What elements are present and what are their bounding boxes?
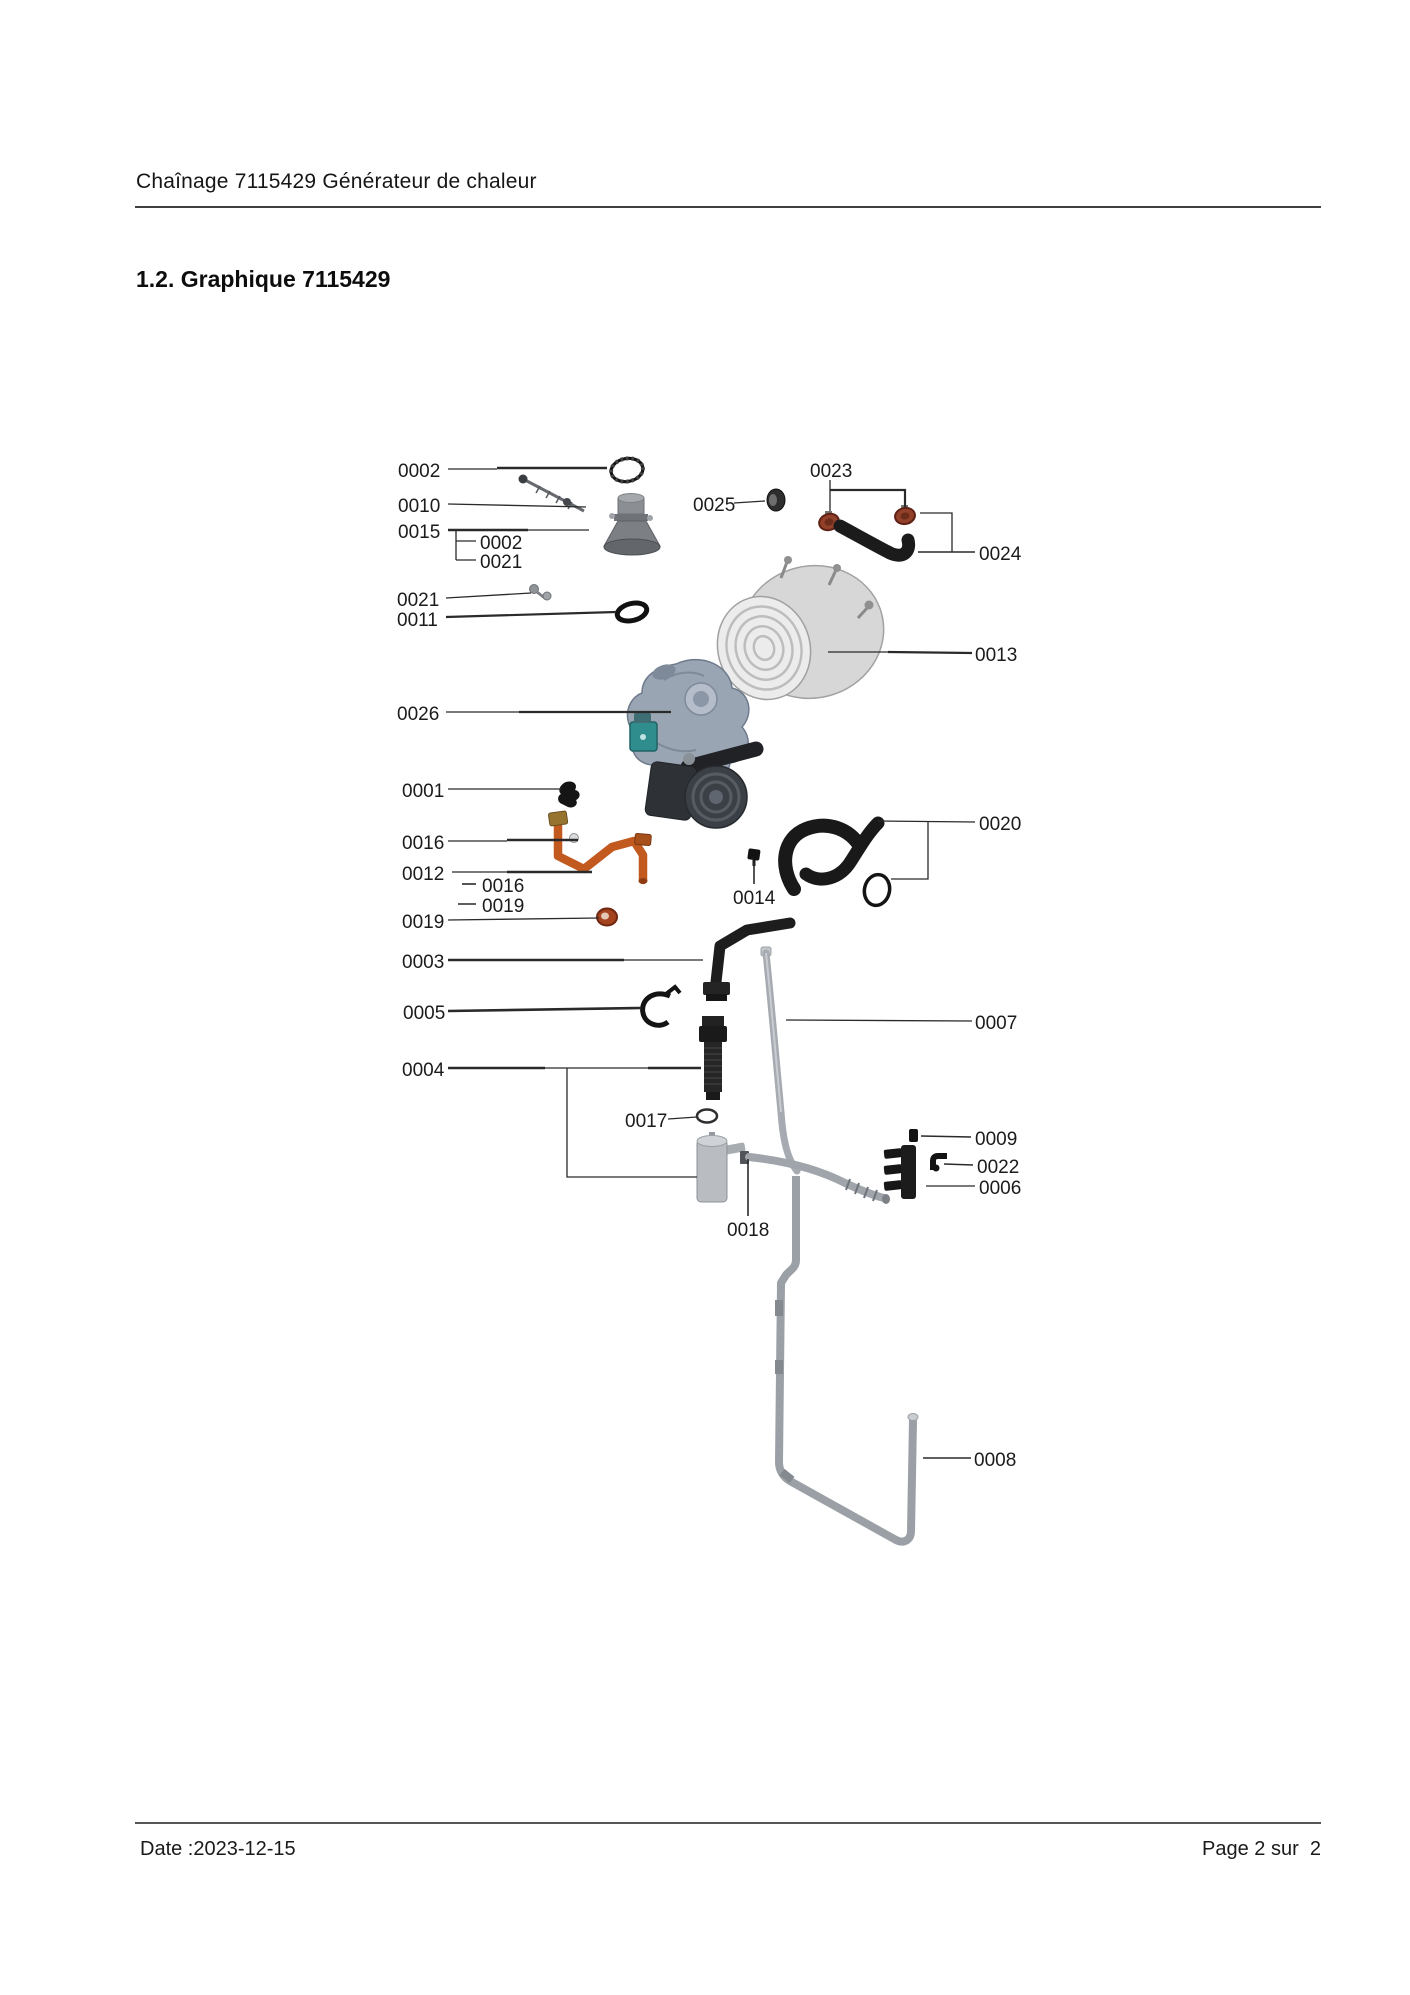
- part-screws-0021: [530, 585, 552, 601]
- leader-line: [786, 1020, 972, 1021]
- footer-page-number: Page 2 sur 2: [135, 1838, 1321, 1861]
- part-label: 0022: [977, 1157, 1019, 1178]
- annotation-layer: 0002001000150002002100210011002600010016…: [397, 461, 1022, 1471]
- part-clip-0005: [643, 987, 680, 1025]
- footer-rule: [135, 1822, 1321, 1824]
- part-label: 0005: [403, 1003, 445, 1024]
- part-oring-0002: [609, 456, 645, 484]
- part-label: 0019: [482, 896, 524, 917]
- part-manifold-0006: [884, 1145, 916, 1199]
- part-oring-0011: [615, 600, 648, 624]
- leader-line: [734, 501, 765, 503]
- part-label: 0013: [975, 645, 1017, 666]
- part-oring-0017: [697, 1110, 717, 1123]
- leader-line: [891, 822, 928, 879]
- part-clip-0001: [558, 782, 580, 808]
- leader-line: [944, 1164, 973, 1165]
- part-clamps-0023: [817, 505, 916, 533]
- leader-line: [446, 612, 616, 617]
- part-pipe-0007: [761, 947, 797, 1171]
- part-hose-0024: [840, 526, 909, 555]
- leader-line: [668, 1117, 697, 1119]
- part-label: 0004: [402, 1060, 445, 1081]
- part-label: 0018: [727, 1220, 769, 1241]
- part-label: 0016: [482, 876, 524, 897]
- part-label: 0026: [397, 704, 439, 725]
- part-label: 0017: [625, 1111, 667, 1132]
- leader-line: [448, 918, 599, 920]
- part-label: 0003: [402, 952, 444, 973]
- leader-line: [920, 513, 952, 552]
- part-label: 0025: [693, 495, 735, 516]
- leader-line: [446, 593, 531, 598]
- part-hose-0020: [785, 823, 878, 889]
- leader-line: [830, 490, 905, 507]
- part-label: 0021: [480, 552, 522, 573]
- part-label: 0007: [975, 1013, 1017, 1034]
- part-sleeve-0004b: [697, 1132, 746, 1202]
- part-label: 0008: [974, 1450, 1016, 1471]
- part-grommet-0025: [767, 489, 785, 511]
- part-label: 0014: [733, 888, 776, 909]
- exploded-parts-diagram: 0002001000150002002100210011002600010016…: [0, 0, 1410, 1995]
- part-label: 0012: [402, 864, 444, 885]
- part-label: 0016: [402, 833, 444, 854]
- part-label: 0023: [810, 461, 852, 482]
- part-label: 0010: [398, 496, 440, 517]
- part-pipe-0003: [703, 923, 790, 1001]
- part-pipe-0018: [740, 1151, 890, 1204]
- part-label: 0024: [979, 544, 1022, 565]
- part-label: 0002: [398, 461, 440, 482]
- leader-line: [888, 652, 972, 653]
- part-label: 0011: [397, 610, 438, 631]
- part-pipe-0008: [779, 1176, 918, 1542]
- part-pin-0009: [909, 1129, 918, 1142]
- part-label: 0020: [979, 814, 1021, 835]
- leader-line: [448, 1008, 641, 1011]
- part-label: 0015: [398, 522, 440, 543]
- document-page: { "header": { "title": "Chaînage 7115429…: [0, 0, 1410, 1995]
- part-label: 0009: [975, 1129, 1017, 1150]
- part-label: 0006: [979, 1178, 1021, 1199]
- part-label: 0002: [480, 533, 522, 554]
- leader-line: [921, 1136, 971, 1137]
- part-oring-0020: [862, 872, 893, 908]
- part-label: 0019: [402, 912, 444, 933]
- part-threaded-tube-0004: [699, 1016, 727, 1100]
- leader-line: [878, 821, 975, 822]
- part-label: 0001: [402, 781, 444, 802]
- part-label: 0021: [397, 590, 439, 611]
- part-venturi-0015: [604, 494, 660, 556]
- part-nut-0019: [597, 909, 617, 926]
